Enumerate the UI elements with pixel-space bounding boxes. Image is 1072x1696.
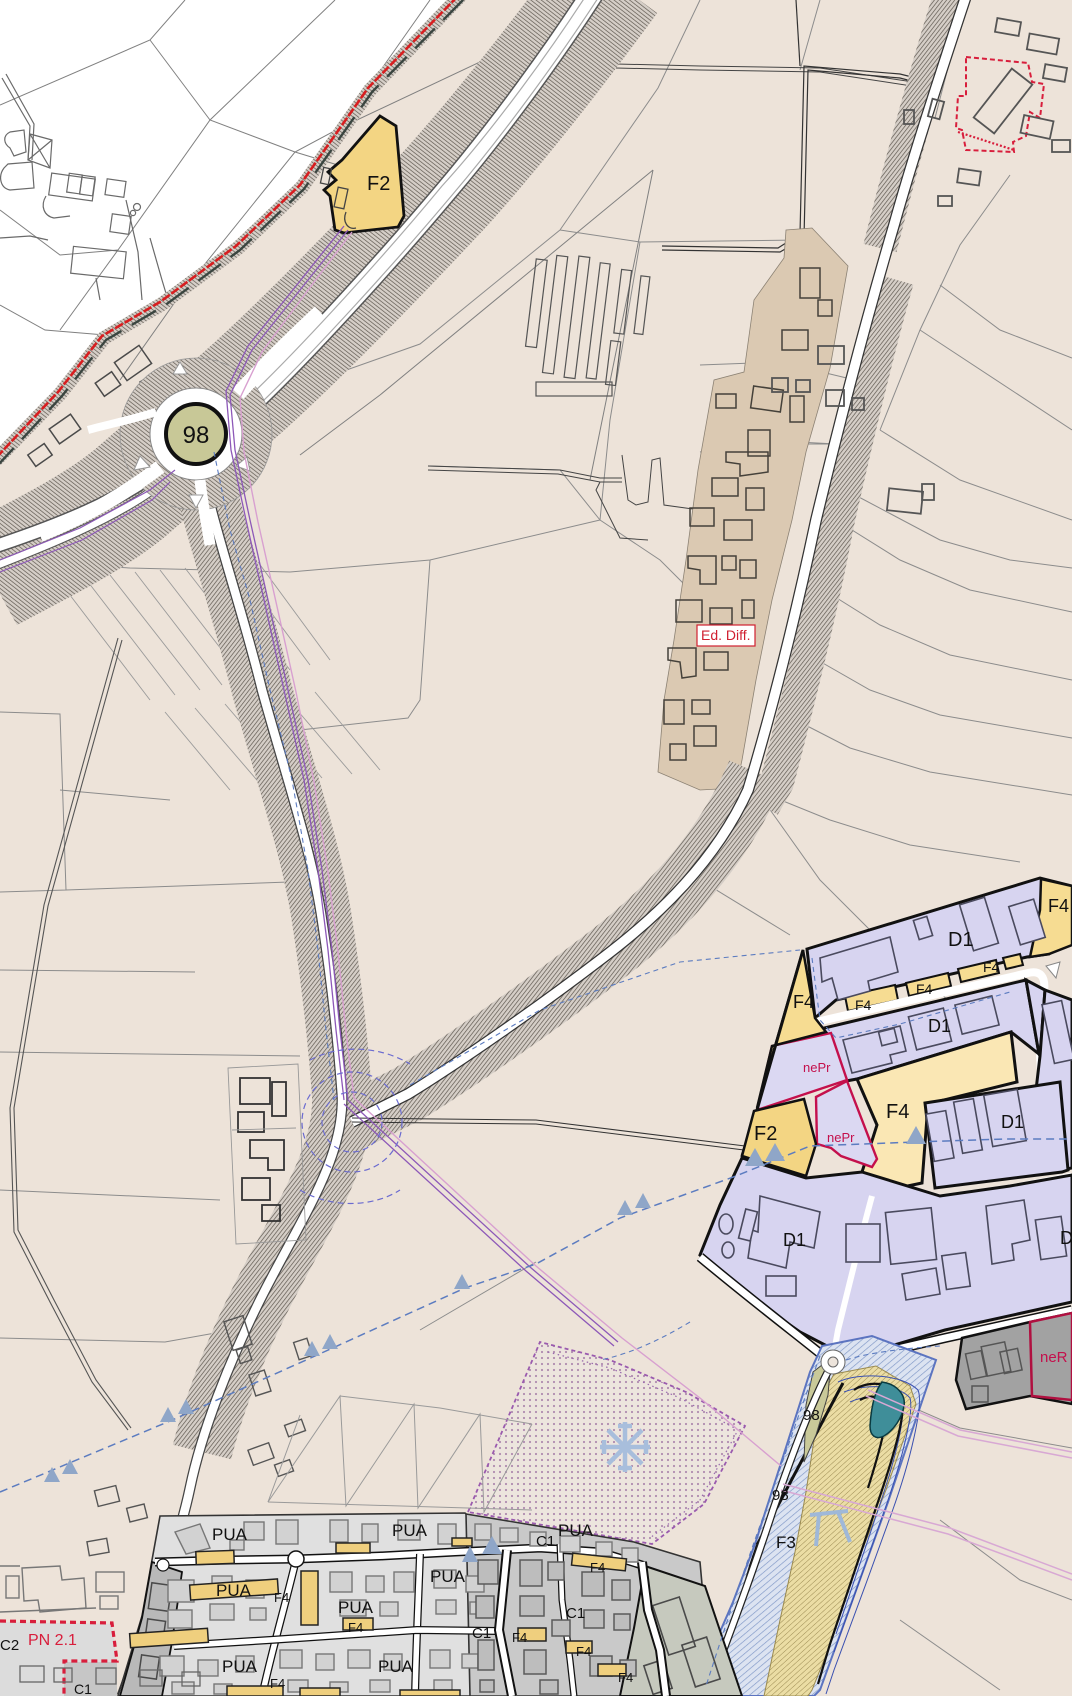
svg-text:F4: F4 (983, 959, 1000, 975)
svg-text:C1: C1 (472, 1625, 491, 1642)
svg-text:F3: F3 (776, 1533, 796, 1552)
svg-text:F4: F4 (886, 1101, 909, 1123)
svg-text:F4: F4 (855, 997, 872, 1013)
svg-text:Ed. Diff.: Ed. Diff. (701, 627, 751, 643)
svg-text:F4: F4 (512, 1630, 527, 1645)
svg-text:C1: C1 (566, 1605, 585, 1622)
svg-text:F4: F4 (1048, 896, 1069, 916)
svg-text:C2: C2 (0, 1637, 19, 1654)
svg-text:F2: F2 (367, 173, 390, 195)
svg-text:D1: D1 (783, 1230, 806, 1250)
svg-text:nePr: nePr (827, 1130, 855, 1145)
svg-text:F4: F4 (348, 1620, 363, 1635)
svg-text:98: 98 (772, 1487, 789, 1504)
svg-text:PUA: PUA (338, 1598, 374, 1617)
svg-text:F4: F4 (916, 981, 933, 997)
svg-text:D1: D1 (1001, 1112, 1024, 1132)
svg-text:C1: C1 (536, 1533, 555, 1550)
svg-text:F2: F2 (754, 1123, 777, 1145)
svg-text:98: 98 (183, 422, 210, 449)
svg-text:PN 2.1: PN 2.1 (28, 1632, 77, 1649)
svg-text:PUA: PUA (212, 1525, 248, 1544)
svg-text:F4: F4 (618, 1670, 633, 1685)
svg-text:F4: F4 (793, 992, 814, 1012)
svg-text:C1: C1 (74, 1681, 92, 1696)
svg-text:PUA: PUA (216, 1581, 252, 1600)
svg-text:PUA: PUA (558, 1521, 594, 1540)
svg-text:PUA: PUA (378, 1657, 414, 1676)
svg-text:F4: F4 (590, 1560, 605, 1575)
svg-text:PUA: PUA (392, 1521, 428, 1540)
svg-text:neR: neR (1040, 1349, 1068, 1366)
svg-text:F4: F4 (576, 1644, 591, 1659)
svg-text:D1: D1 (1060, 1228, 1072, 1248)
svg-text:nePr: nePr (803, 1060, 831, 1075)
svg-text:PUA: PUA (430, 1567, 466, 1586)
svg-text:D1: D1 (928, 1016, 951, 1036)
svg-text:PUA: PUA (222, 1657, 258, 1676)
svg-text:D1: D1 (948, 929, 974, 951)
svg-text:F4: F4 (274, 1590, 289, 1605)
svg-text:98: 98 (803, 1407, 820, 1424)
svg-text:F4: F4 (270, 1676, 285, 1691)
